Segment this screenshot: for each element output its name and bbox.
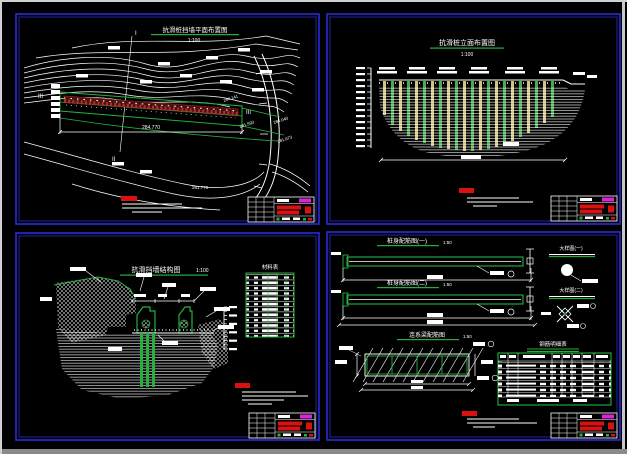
title-block [248,197,314,222]
station-labels [377,67,597,78]
title-block [551,196,617,221]
bar-detail-2: 桩身配筋图(二) 1:50 [331,279,537,327]
materials-table-title: 材料表 [262,263,279,271]
side-label-3: 284.040 [273,115,290,125]
weep-hole-1 [142,320,150,328]
panel-elevation: 抗滑桩立面布置图 1:100 [327,14,620,224]
bar1-scale: 1:50 [443,240,452,245]
rock-hatch-lower [56,329,218,399]
structure-title: 抗滑挡墙结构图 [132,265,181,274]
side-label-2: 281.593 [239,119,256,129]
bar2-title: 桩身配筋图(二) [387,279,427,287]
side-label-1: 284.141 [223,93,240,103]
title-block [249,413,315,438]
road-lines [254,54,310,202]
structure-title-group: 抗滑挡墙结构图 1:100 [120,265,209,276]
structure-scale: 1:100 [196,268,209,274]
title-underline [430,48,504,49]
sheet-border-inner [19,17,316,221]
notes-stamp [235,383,250,388]
notes-lines [122,204,202,212]
sheet-border-inner [330,235,617,437]
materials-table: 材料表 [246,263,294,337]
elevation-title-group: 抗滑桩立面布置图 1:100 [430,38,504,58]
bar1-title: 桩身配筋图(一) [387,237,427,245]
rebar-table-title: 钢筋明细表 [539,340,567,348]
top-dimension [132,294,194,303]
weep-hole-2 [180,320,188,328]
section-marker-1: I [135,31,137,37]
plan-title: 抗滑桩挡墙平面布置图 [163,25,228,34]
contour-label: 281.770 [192,185,209,190]
cad-canvas: 抗滑桩挡墙平面布置图 1:100 I [2,2,627,454]
elevation-scale: 1:100 [461,52,474,58]
cad-drawing-viewport: 抗滑桩挡墙平面布置图 1:100 I [0,0,627,454]
detail2-title: 大样图(二) [559,287,583,294]
section-marker-4: III [38,94,43,100]
side-elevation-labels: 284.141 281.593 284.040 281.673 [223,93,294,144]
bar-detail-1: 桩身配筋图(一) 1:50 [331,237,534,282]
rock-hatch-region [379,86,585,157]
elevation-scale-bar [356,67,371,148]
notes-stamp [121,196,137,201]
title-underline [120,275,208,276]
wall-sections [137,307,192,333]
window-bottom-edge [2,449,627,454]
bar2-scale: 1:50 [443,282,452,287]
panel-details: 桩身配筋图(一) 1:50 桩身配筋图(二) 1:50 [327,232,620,440]
notes-stamp [459,188,474,193]
panel-plan: 抗滑桩挡墙平面布置图 1:100 I [16,14,319,224]
panel-structure: 抗滑挡墙结构图 1:100 [16,233,319,440]
title-underline [151,34,239,35]
rebar-section-circle [561,264,573,276]
grid-title: 连系梁配筋图 [409,331,445,339]
title-block [551,413,617,438]
beam-grid-detail: 连系梁配筋图 1:50 [335,331,498,392]
detail-2: 大样图(二) [541,287,596,329]
contour-elevation-labels: 281.770 [76,46,272,190]
detail-1: 大样图(一) [549,245,598,283]
elevation-title: 抗滑桩立面布置图 [439,38,495,47]
detail1-title: 大样图(一) [559,245,583,252]
notes-lines [467,198,533,206]
sheet-border-outer [327,232,620,440]
notes-lines [467,419,537,427]
plan-dim-label: 284.770 [142,125,160,131]
rebar-schedule: 钢筋明细表 [498,340,611,405]
notes-stamp [462,411,477,416]
window-right-edge [622,2,625,451]
foundation-piles [140,333,155,387]
section-marker-3: III [246,110,251,116]
grid-scale: 1:50 [463,334,472,339]
notes-lines [242,392,308,404]
